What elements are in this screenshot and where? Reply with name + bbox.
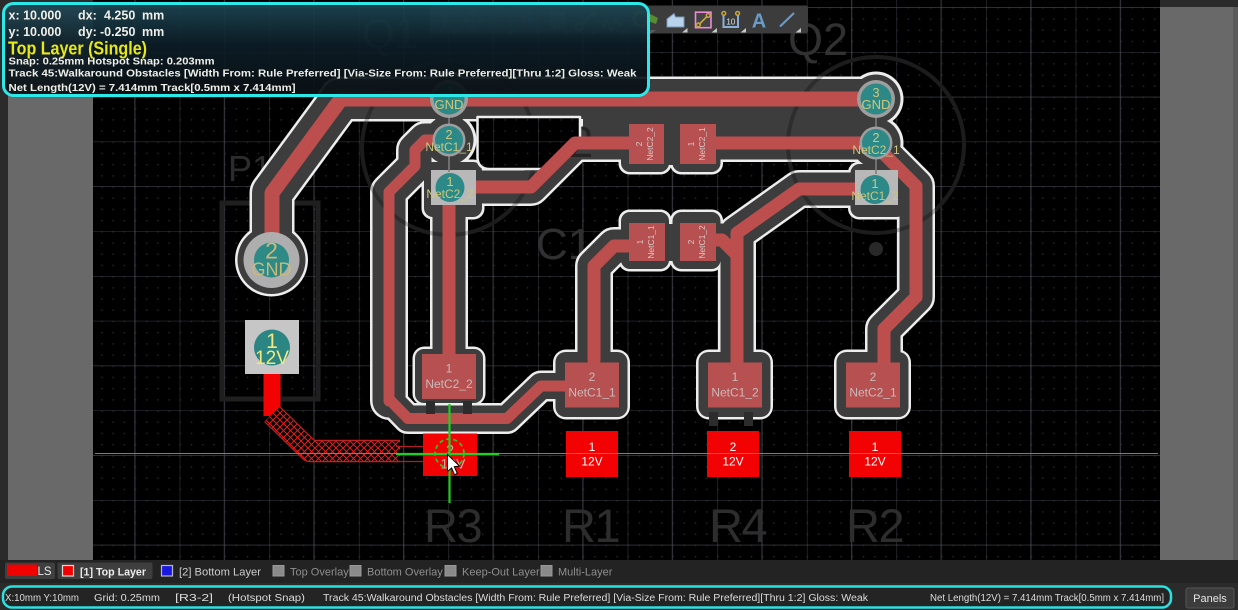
svg-text:NetC2_1: NetC2_1 <box>849 386 897 400</box>
svg-text:4.250: 4.250 <box>104 9 135 23</box>
svg-text:(Hotspot Snap): (Hotspot Snap) <box>228 593 305 604</box>
svg-text:LS: LS <box>37 566 51 578</box>
svg-text:NetC2_2: NetC2_2 <box>645 127 655 161</box>
svg-text:X:10mm Y:10mm: X:10mm Y:10mm <box>5 593 79 604</box>
svg-text:[2] Bottom Layer: [2] Bottom Layer <box>179 567 261 579</box>
svg-text:Grid: 0.25mm: Grid: 0.25mm <box>94 593 160 604</box>
svg-text:[R3-2]: [R3-2] <box>175 593 213 604</box>
svg-text:1: 1 <box>446 362 453 376</box>
svg-text:A: A <box>752 11 766 33</box>
svg-text:dx:: dx: <box>78 9 97 23</box>
svg-text:12V: 12V <box>864 455 885 469</box>
svg-text:GND: GND <box>435 97 464 112</box>
svg-text:NetC1_2: NetC1_2 <box>697 225 707 259</box>
svg-text:GND: GND <box>862 97 891 112</box>
svg-text:1: 1 <box>732 370 739 384</box>
svg-text:Multi-Layer: Multi-Layer <box>558 567 613 579</box>
svg-text:mm: mm <box>142 9 164 23</box>
svg-text:NetC2_1: NetC2_1 <box>852 143 900 157</box>
svg-text:Track 45:Walkaround Obstacles: Track 45:Walkaround Obstacles [Width Fro… <box>9 69 637 80</box>
svg-text:R4: R4 <box>709 499 766 552</box>
svg-text:1: 1 <box>872 440 879 454</box>
svg-text:Snap: 0.25mm Hotspot Snap: 0.2: Snap: 0.25mm Hotspot Snap: 0.203mm <box>9 56 215 68</box>
svg-text:NetC1_1: NetC1_1 <box>425 140 473 154</box>
svg-text:12V: 12V <box>255 348 289 369</box>
svg-text:1: 1 <box>589 440 596 454</box>
svg-text:2: 2 <box>589 370 596 384</box>
svg-text:2: 2 <box>870 370 877 384</box>
svg-text:Net Length(12V) = 7.414mm Trac: Net Length(12V) = 7.414mm Track[0.5mm x … <box>9 82 296 94</box>
svg-text:NetC2_1: NetC2_1 <box>697 127 707 161</box>
svg-text:12V: 12V <box>722 455 743 469</box>
svg-text:R2: R2 <box>846 499 903 552</box>
svg-text:x: 10.000: x: 10.000 <box>9 9 62 23</box>
svg-text:1: 1 <box>686 141 696 146</box>
svg-text:1: 1 <box>635 239 645 244</box>
svg-text:Top Overlay: Top Overlay <box>290 567 349 579</box>
svg-text:Net Length(12V) = 7.414mm Trac: Net Length(12V) = 7.414mm Track[0.5mm x … <box>930 593 1164 604</box>
svg-text:NetC1_1: NetC1_1 <box>646 225 656 259</box>
svg-text:NetC2_2: NetC2_2 <box>425 377 473 391</box>
svg-text:2: 2 <box>730 440 737 454</box>
svg-text:12V: 12V <box>581 455 602 469</box>
svg-text:NetC2_2: NetC2_2 <box>426 187 474 201</box>
svg-text:R3: R3 <box>424 499 481 552</box>
svg-text:Track 45:Walkaround Obstacles: Track 45:Walkaround Obstacles [Width Fro… <box>323 593 869 604</box>
svg-text:10: 10 <box>726 18 735 27</box>
svg-text:Panels: Panels <box>1193 593 1227 605</box>
svg-text:2: 2 <box>686 239 696 244</box>
svg-text:GND: GND <box>252 260 292 280</box>
svg-text:NetC1_2: NetC1_2 <box>711 386 759 400</box>
svg-text:2: 2 <box>634 141 644 146</box>
svg-text:Bottom Overlay: Bottom Overlay <box>367 567 443 579</box>
svg-text:Keep-Out Layer: Keep-Out Layer <box>462 567 540 579</box>
svg-text:[1] Top Layer: [1] Top Layer <box>80 567 147 579</box>
svg-text:NetC1_2: NetC1_2 <box>851 189 899 203</box>
svg-text:NetC1_1: NetC1_1 <box>568 386 616 400</box>
svg-text:R1: R1 <box>562 499 619 552</box>
